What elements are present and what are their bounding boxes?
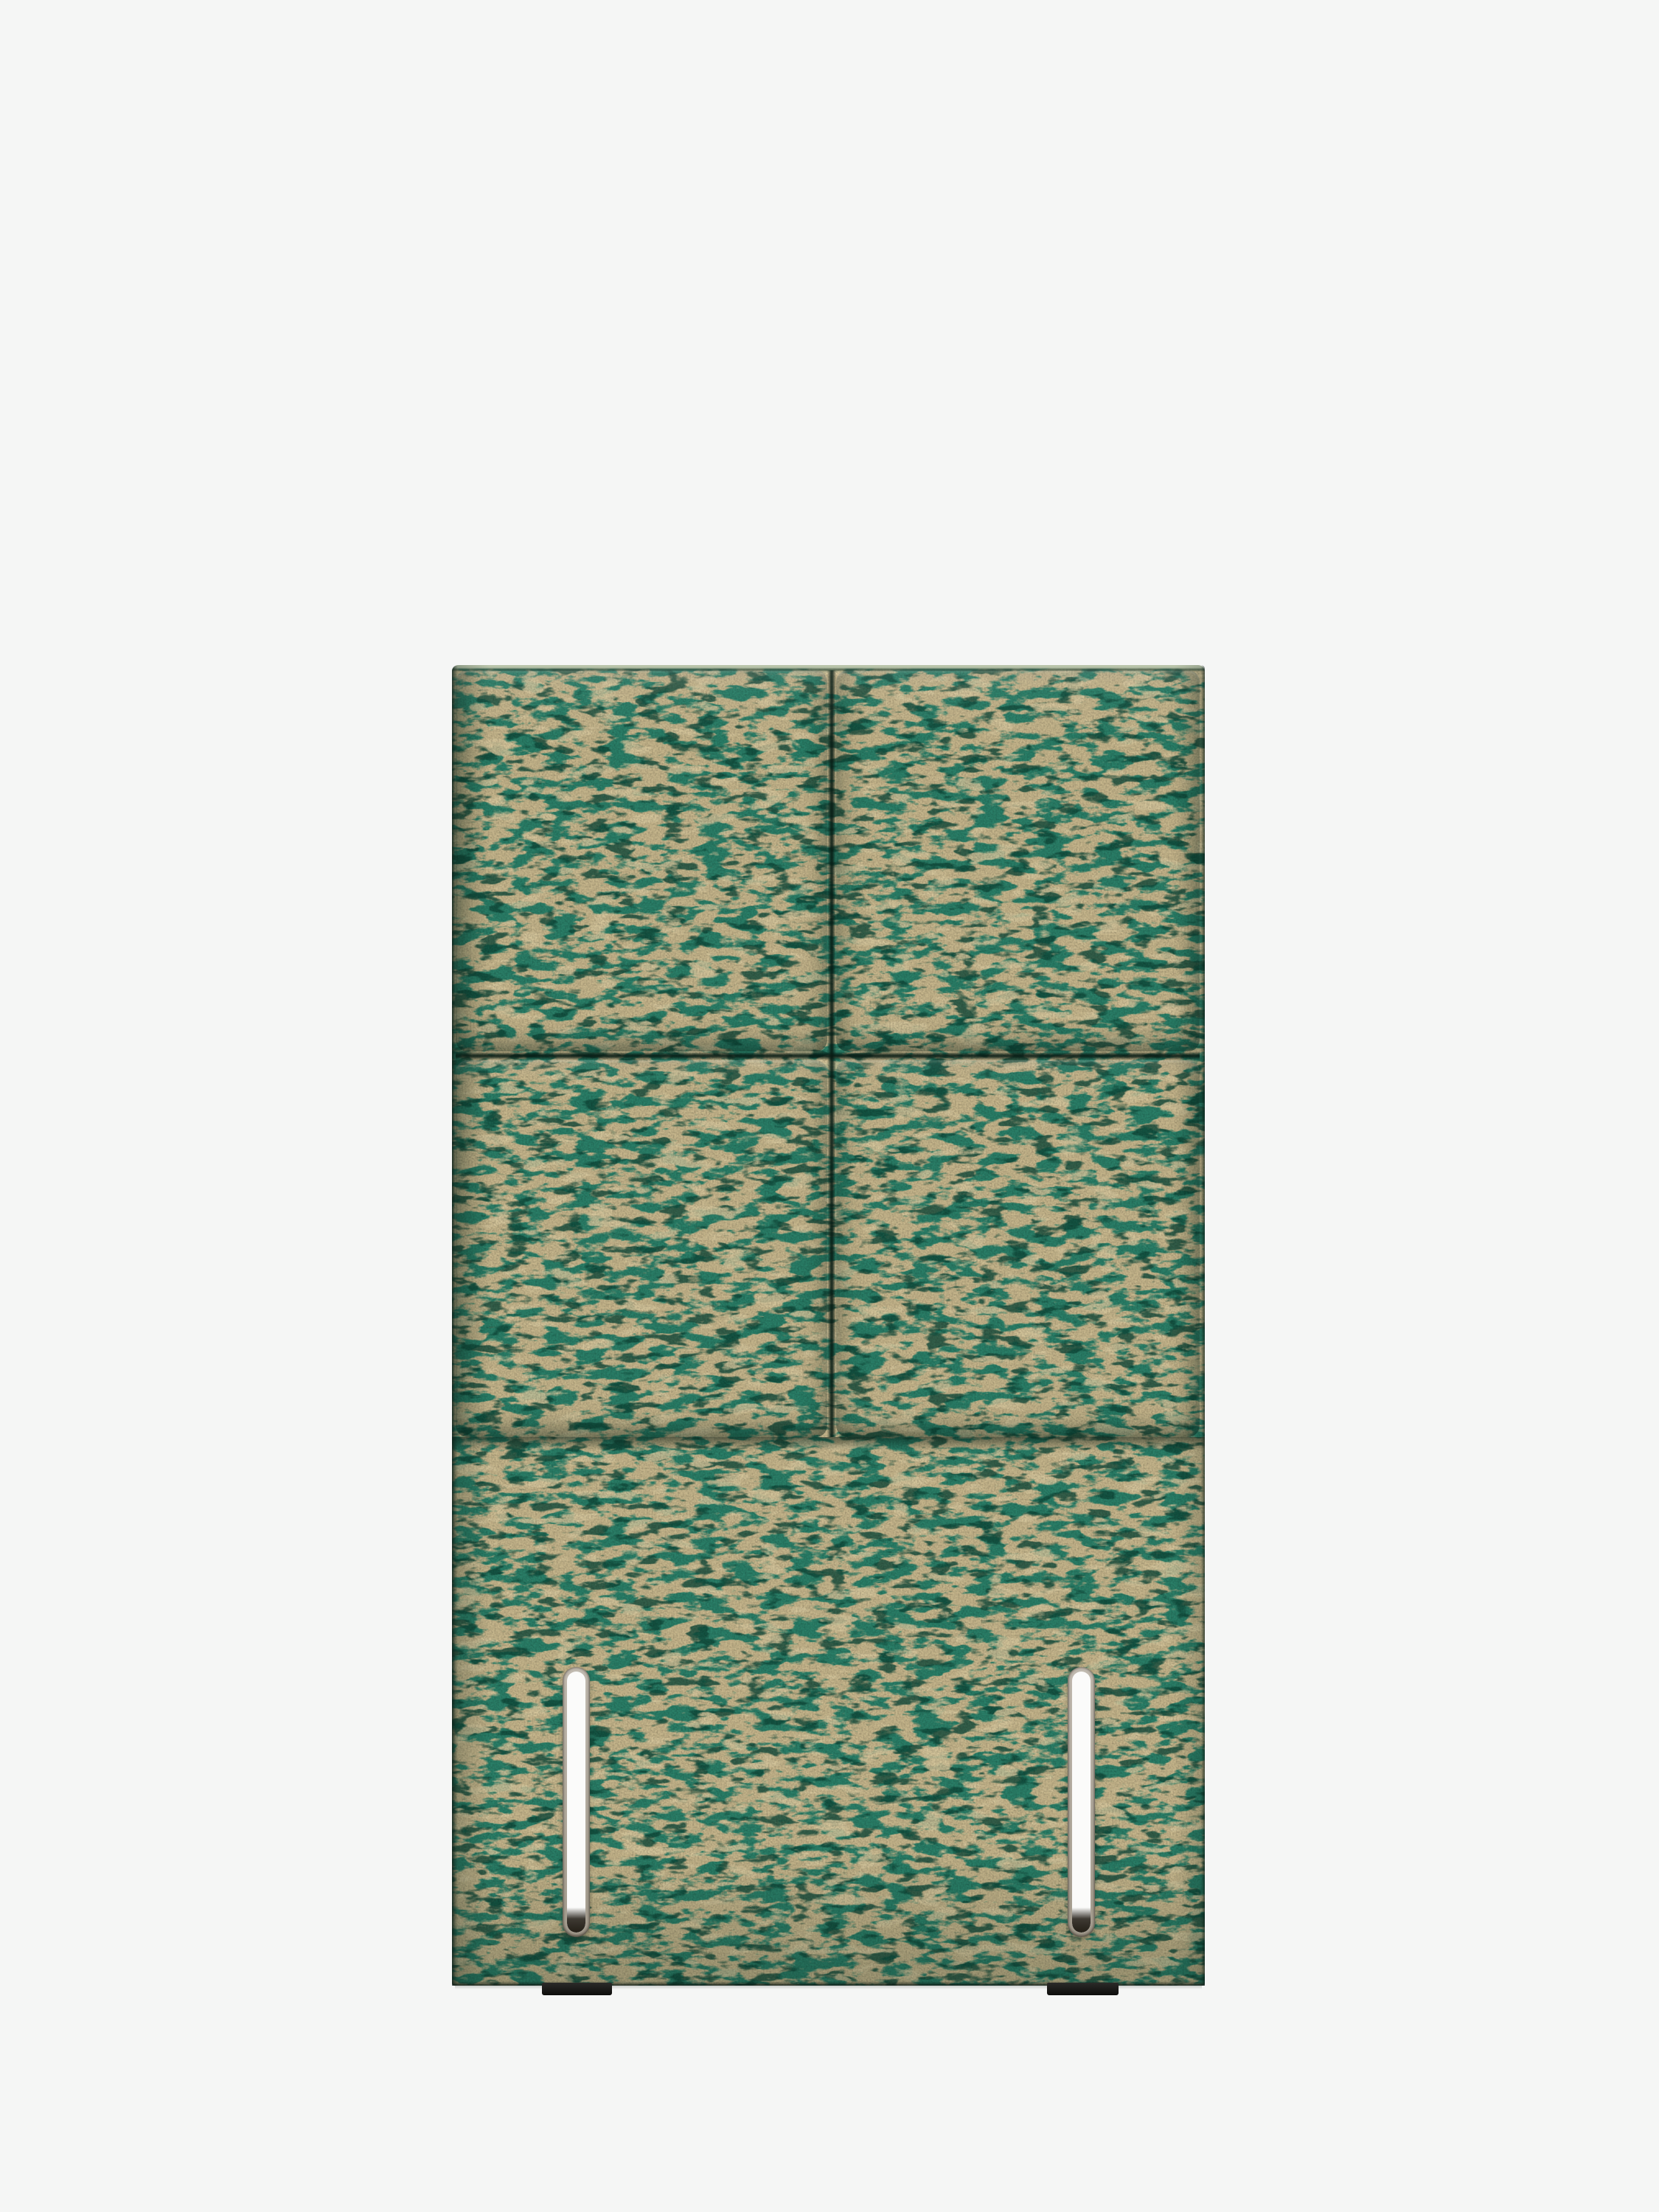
strap-slot-left-inner-shadow: [567, 1907, 585, 1933]
strap-slot-right-inner-shadow: [1072, 1907, 1091, 1933]
strap-slot-right: [1068, 1667, 1095, 1937]
headboard-foot-right: [1047, 1983, 1119, 1995]
product-photo-background: [0, 0, 1659, 2212]
headboard: [452, 665, 1205, 1986]
strap-slot-right-opening: [1072, 1672, 1091, 1933]
strap-slot-left-opening: [567, 1672, 585, 1933]
headboard-foot-left: [542, 1983, 612, 1995]
strap-slot-left: [563, 1667, 590, 1937]
